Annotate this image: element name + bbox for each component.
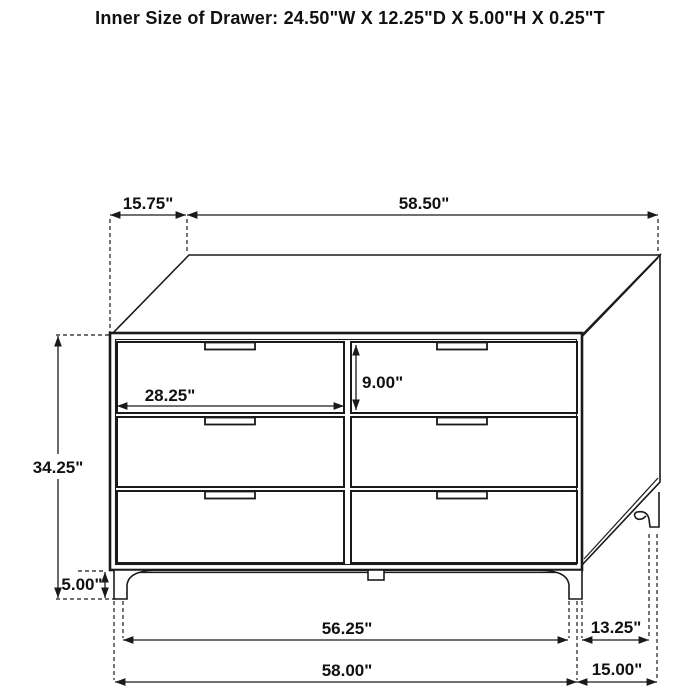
drawer-handle-top-right [437, 343, 487, 350]
drawer-handle-bottom-right [437, 492, 487, 499]
dim-label-top-width: 58.50" [399, 194, 450, 213]
drawer-middle-right [351, 417, 577, 487]
drawer-handle-middle-left [205, 418, 255, 425]
dresser-body [110, 255, 660, 599]
dim-label-top-depth: 15.75" [123, 194, 174, 213]
dim-label-drawer-height: 9.00" [362, 373, 403, 392]
drawer-handle-middle-right [437, 418, 487, 425]
leg-front-right [539, 570, 582, 599]
leg-center-support [368, 570, 384, 580]
dim-label-overall-depth: 15.00" [592, 660, 643, 679]
diagram-canvas: 15.75" 58.50" 34.25" 5.00" 28.25" 9.00" … [0, 0, 700, 700]
dim-label-side-leg-span: 13.25" [591, 618, 642, 637]
dim-label-overall-width: 58.00" [322, 661, 373, 680]
dim-label-drawer-width: 28.25" [145, 386, 196, 405]
leg-front-left [114, 570, 153, 599]
dresser-dimension-diagram: Inner Size of Drawer: 24.50"W X 12.25"D … [0, 0, 700, 700]
drawer-handle-top-left [205, 343, 255, 350]
dim-label-leg-height: 5.00" [61, 575, 102, 594]
drawer-bottom-right [351, 491, 577, 563]
dim-label-overall-height: 34.25" [33, 458, 84, 477]
drawer-bottom-left [117, 491, 344, 563]
drawer-middle-left [117, 417, 344, 487]
top-panel [111, 255, 660, 335]
drawer-handle-bottom-left [205, 492, 255, 499]
dim-label-leg-span-inner: 56.25" [322, 619, 373, 638]
